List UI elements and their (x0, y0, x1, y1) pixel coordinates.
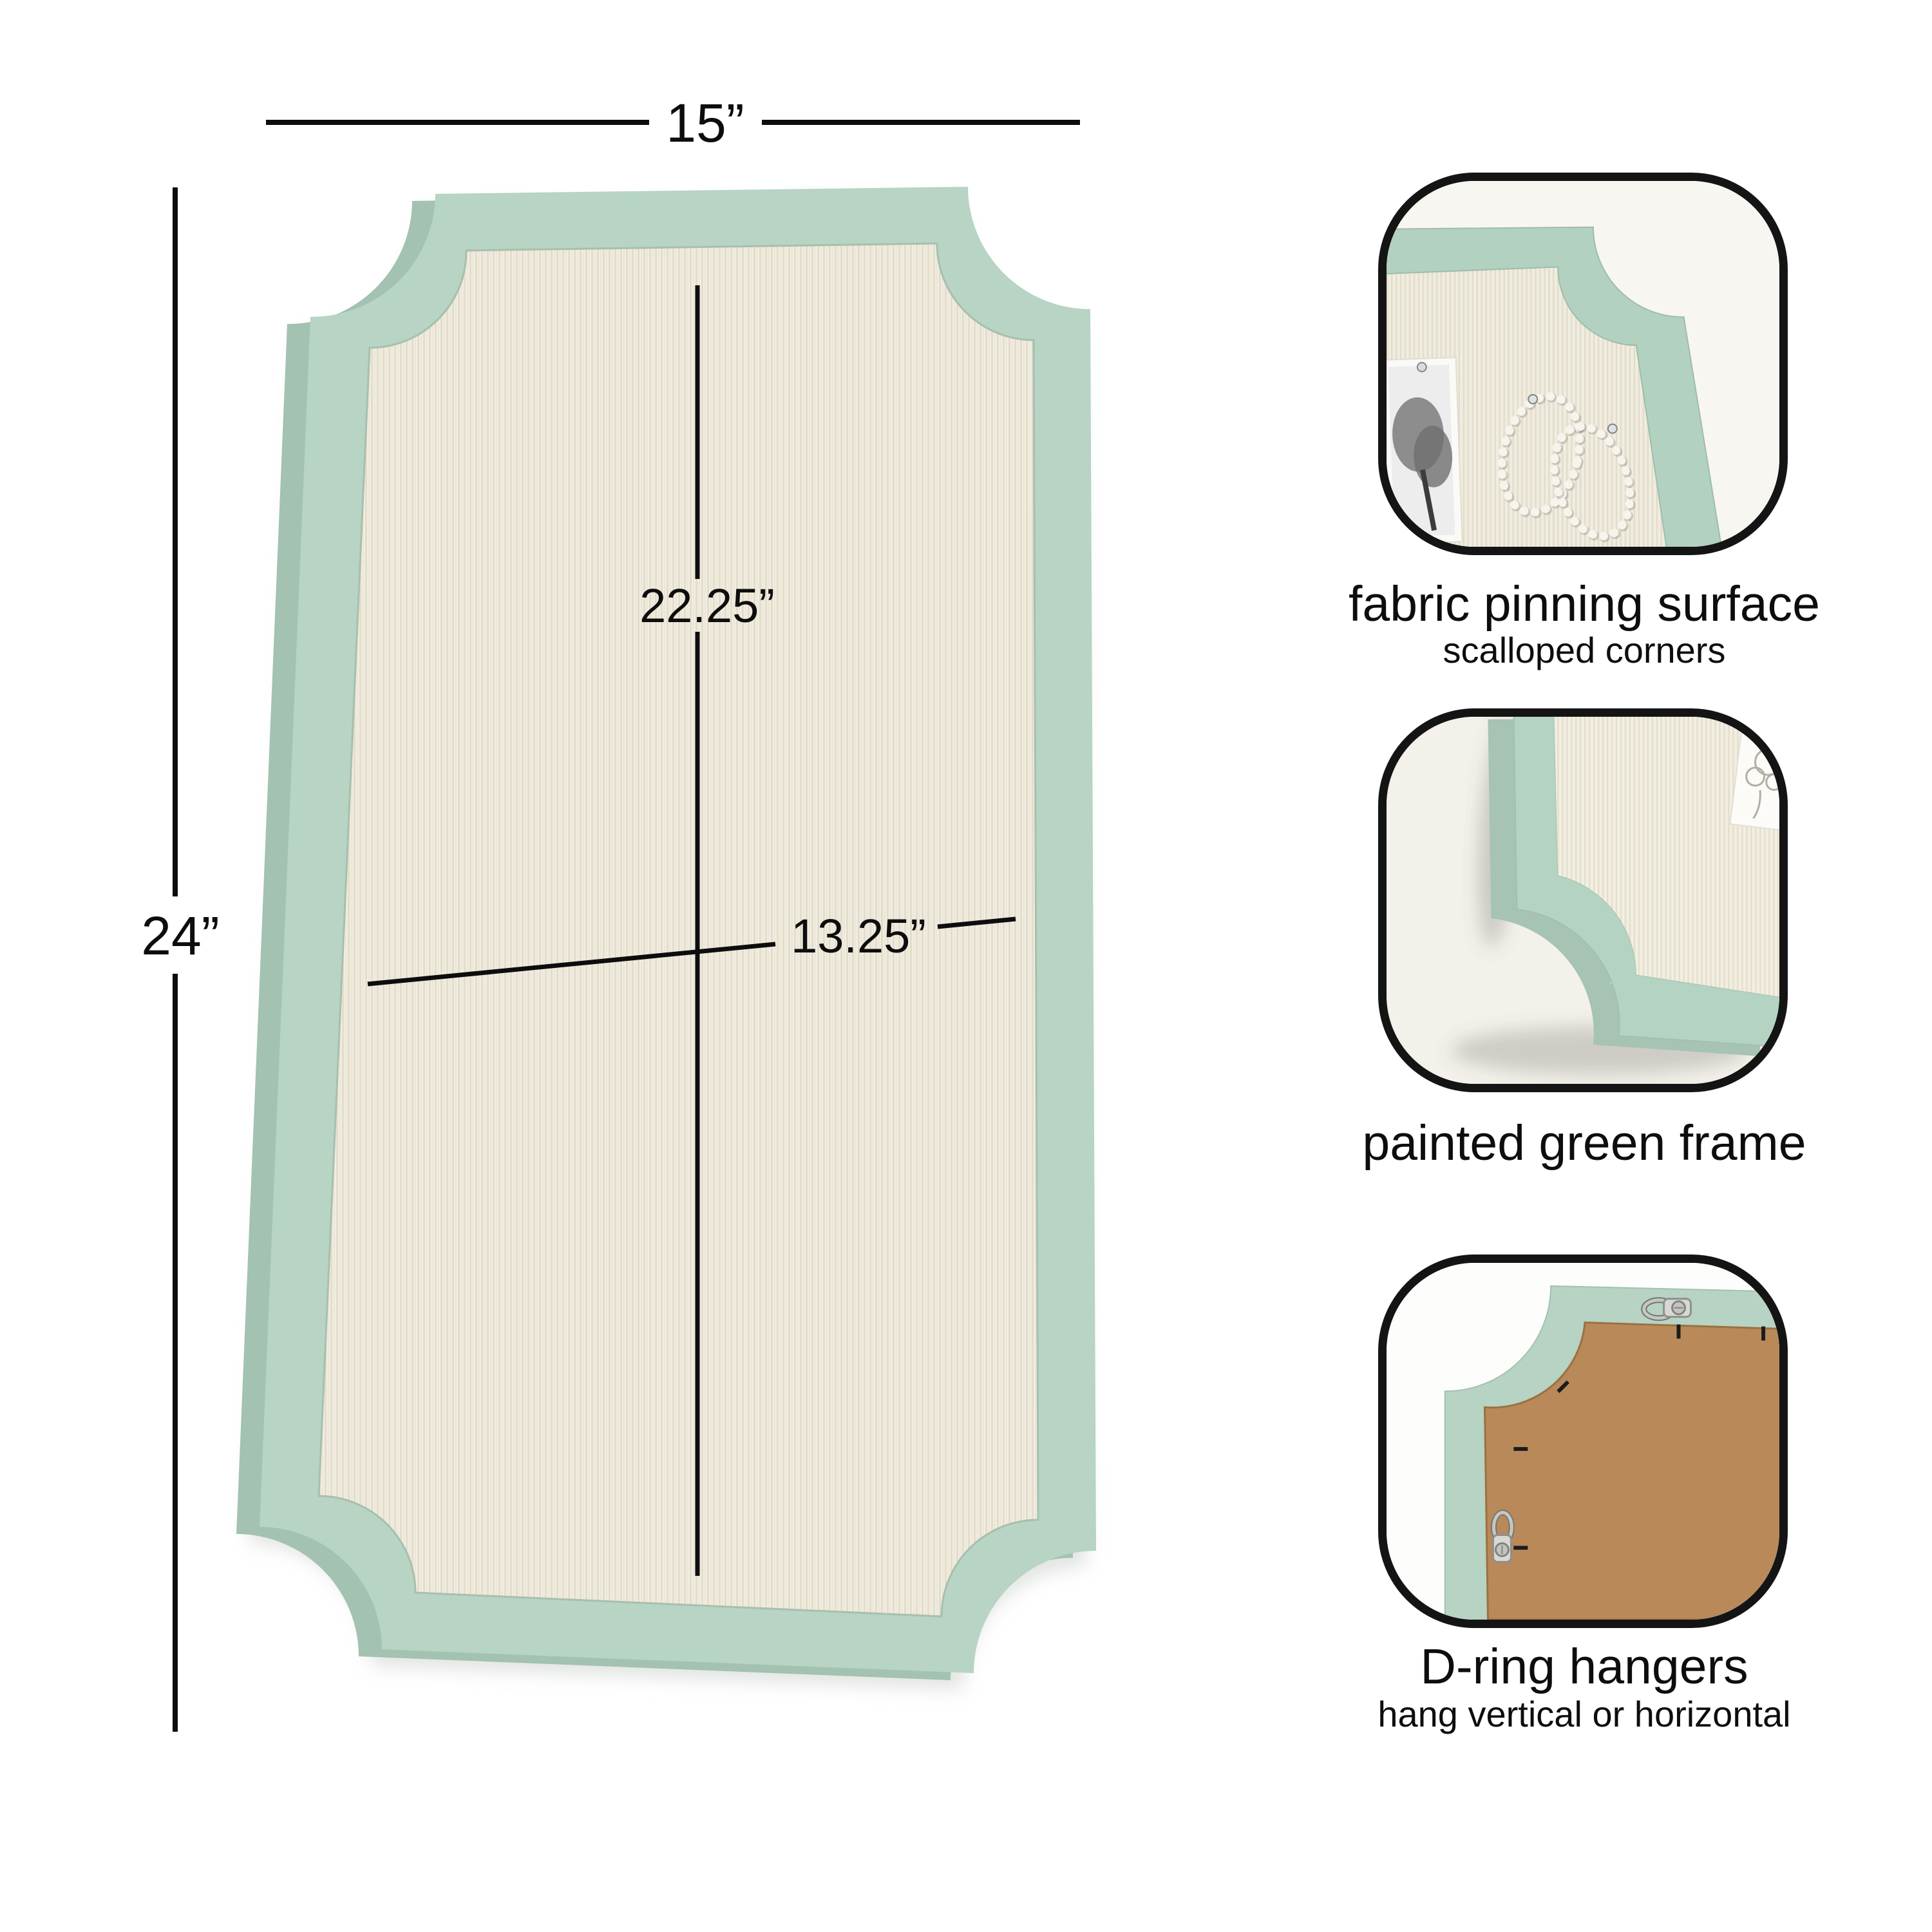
photo-pin (1417, 363, 1426, 372)
callout-subcaption-hang-direction: hang vertical or horizontal (1288, 1694, 1880, 1735)
callout-thumb-green-frame (1378, 708, 1788, 1092)
dim-label-fabric-width: 13.25” (791, 909, 926, 963)
green-frame-photo (1387, 717, 1779, 1084)
callout-caption-fabric-surface: fabric pinning surface (1288, 575, 1880, 633)
callout-subcaption-scalloped-corners: scalloped corners (1288, 630, 1880, 671)
dim-label-overall-width: 15” (666, 93, 744, 153)
dim-label-overall-height: 24” (141, 905, 219, 966)
pin-board (236, 187, 1096, 1690)
callout-thumb-fabric-surface (1378, 173, 1788, 555)
product-infographic: 15” 24” 22.25” 13.25” (0, 0, 1932, 1932)
callout-caption-green-frame: painted green frame (1288, 1114, 1880, 1172)
fabric-surface-photo (1387, 181, 1779, 547)
pinned-photo (1387, 357, 1463, 544)
dim-label-fabric-height: 22.25” (639, 579, 775, 632)
bracelet-pin (1528, 395, 1537, 404)
callout-caption-dring-hangers: D-ring hangers (1288, 1638, 1880, 1696)
board-back-photo (1387, 1263, 1779, 1620)
callout-thumb-dring-hangers (1378, 1255, 1788, 1628)
fabric-surface (319, 243, 1038, 1616)
bracelet-pin (1608, 424, 1617, 433)
